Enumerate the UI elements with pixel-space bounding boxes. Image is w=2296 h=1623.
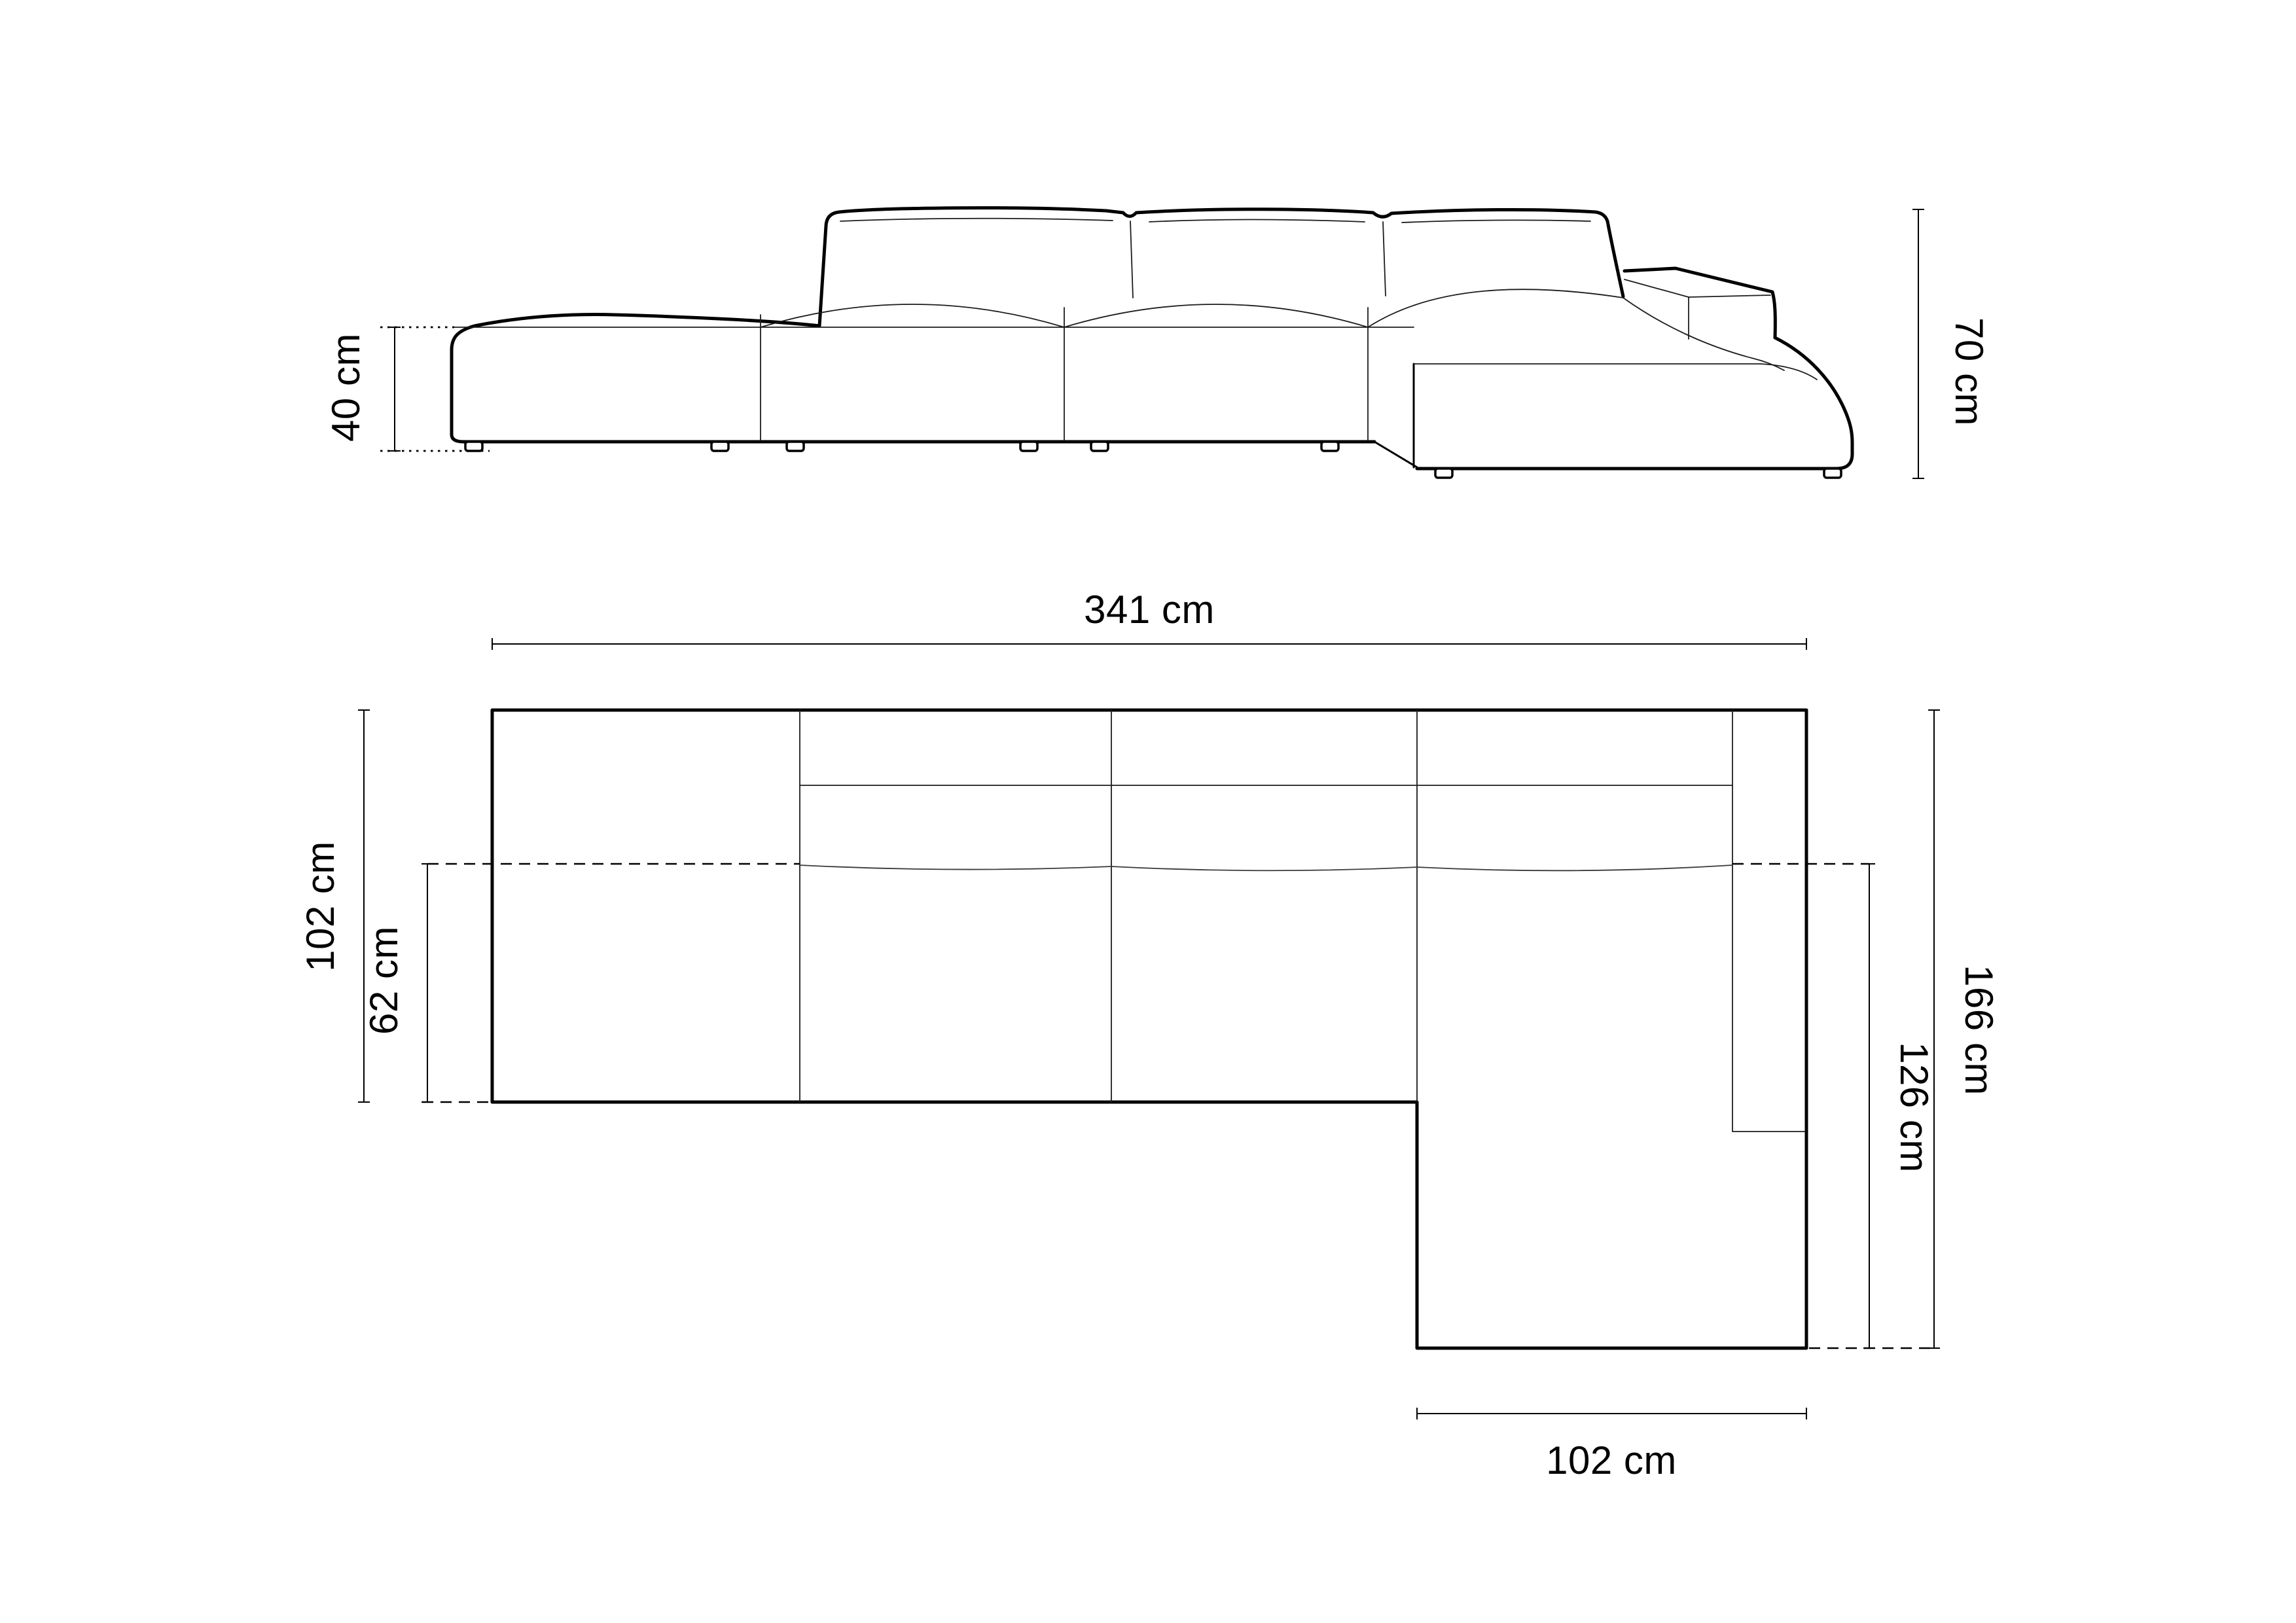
dim-chaise-width-label: 102 cm — [1546, 1438, 1677, 1482]
dim-chaise-depth: 126 cm — [1863, 864, 1936, 1348]
side-chaise-outline — [1417, 338, 1852, 469]
dim-total-width: 341 cm — [492, 588, 1806, 650]
plan-outline — [492, 710, 1806, 1348]
side-sofa-outline — [452, 208, 1623, 435]
side-legs — [465, 442, 1841, 478]
sofa-leg — [465, 442, 482, 451]
dim-total-width-label: 341 cm — [1084, 588, 1215, 632]
sofa-dimension-diagram: 40 cm 70 cm — [0, 0, 2296, 1623]
dim-total-height-label: 70 cm — [1947, 317, 1991, 426]
side-armrest-outline — [1624, 268, 1775, 338]
side-backrest-notch-2 — [1383, 222, 1386, 296]
side-chaise-junction-edge — [1374, 442, 1417, 467]
plan-cushion-front-line — [800, 865, 1732, 870]
dim-total-depth: 166 cm — [1928, 710, 2001, 1348]
sofa-leg — [1435, 469, 1452, 478]
side-view: 40 cm 70 cm — [324, 208, 1991, 478]
sofa-leg — [1020, 442, 1037, 451]
plan-view: 341 cm 102 cm 62 cm 126 cm — [298, 588, 2001, 1482]
dim-main-depth: 102 cm — [298, 710, 370, 1102]
side-seat-cushion-arc-3 — [1368, 289, 1623, 327]
sofa-leg — [1091, 442, 1108, 451]
side-body-bottom-edge — [452, 435, 1374, 442]
sofa-leg — [1321, 442, 1338, 451]
side-backrest-notch-1 — [1130, 221, 1133, 298]
dim-total-depth-label: 166 cm — [1957, 965, 2001, 1096]
side-backrest-top-seam-3 — [1402, 220, 1590, 223]
sofa-leg — [711, 442, 728, 451]
side-chaise-top-edge — [1414, 364, 1817, 380]
side-armrest-back-edge — [1624, 279, 1689, 297]
dim-seat-height-label: 40 cm — [324, 333, 368, 442]
dim-total-height: 70 cm — [1912, 209, 1991, 478]
diagram-canvas: 40 cm 70 cm — [0, 0, 2296, 1623]
dim-chaise-width: 102 cm — [1417, 1408, 1806, 1482]
side-backrest-top-seam-1 — [840, 219, 1113, 221]
dim-seat-height: 40 cm — [324, 327, 490, 451]
side-seat-cushion-arc-2 — [1064, 304, 1368, 327]
side-chaise-seat-curve — [1623, 298, 1784, 370]
dim-seat-depth-label: 62 cm — [362, 926, 406, 1035]
side-backrest-top-seam-2 — [1149, 220, 1365, 223]
side-armrest-front-top-edge — [1689, 295, 1770, 297]
sofa-leg — [1824, 469, 1841, 478]
dim-seat-depth: 62 cm — [362, 864, 433, 1102]
dim-main-depth-label: 102 cm — [298, 841, 342, 972]
dim-chaise-depth-label: 126 cm — [1892, 1042, 1936, 1173]
sofa-leg — [787, 442, 804, 451]
plan-armrest-line — [1732, 710, 1804, 1132]
